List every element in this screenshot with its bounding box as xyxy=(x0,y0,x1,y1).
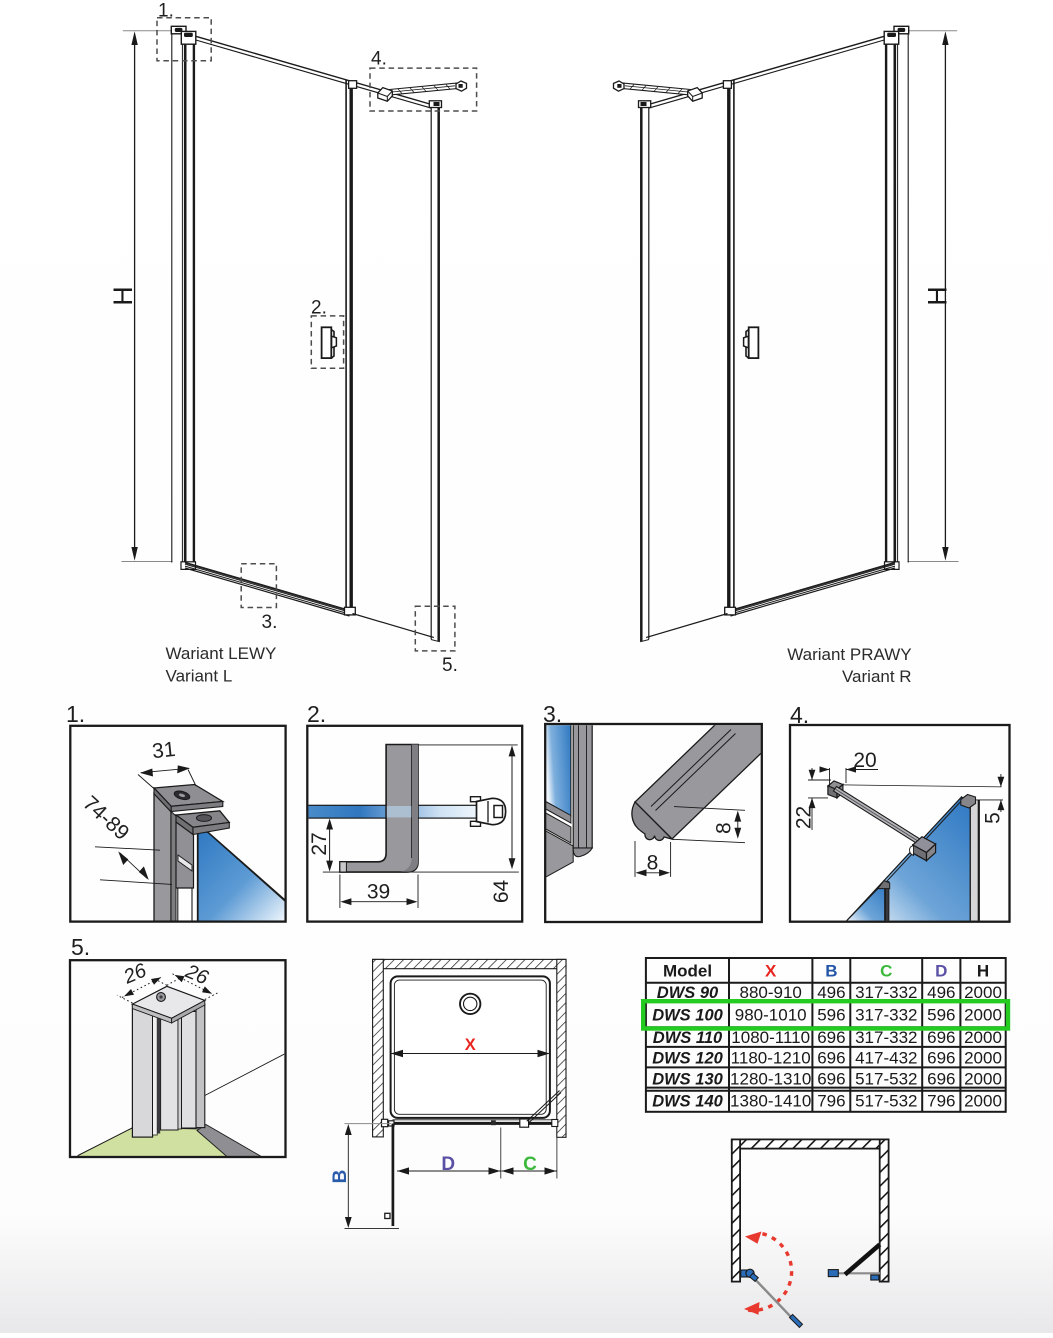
svg-text:X: X xyxy=(765,962,777,981)
svg-text:DWS 100: DWS 100 xyxy=(652,1007,723,1025)
svg-text:1280-1310: 1280-1310 xyxy=(730,1070,811,1089)
svg-text:C: C xyxy=(880,962,892,981)
svg-text:696: 696 xyxy=(927,1070,955,1089)
svg-text:D: D xyxy=(441,1154,455,1175)
svg-text:1.: 1. xyxy=(158,1,174,22)
svg-text:Variant R: Variant R xyxy=(842,667,912,686)
svg-text:696: 696 xyxy=(927,1028,955,1047)
svg-text:DWS 110: DWS 110 xyxy=(653,1029,723,1047)
svg-text:596: 596 xyxy=(817,1006,845,1025)
svg-text:696: 696 xyxy=(817,1049,845,1068)
svg-text:596: 596 xyxy=(927,1006,955,1025)
svg-text:27: 27 xyxy=(308,832,331,855)
svg-text:DWS 130: DWS 130 xyxy=(652,1071,723,1089)
svg-text:980-1010: 980-1010 xyxy=(735,1006,807,1025)
svg-text:H: H xyxy=(923,286,953,306)
svg-text:317-332: 317-332 xyxy=(855,1028,917,1047)
svg-text:5: 5 xyxy=(982,812,1005,824)
svg-text:2000: 2000 xyxy=(964,1070,1002,1089)
svg-text:2000: 2000 xyxy=(964,1049,1002,1068)
svg-text:517-532: 517-532 xyxy=(855,1092,917,1111)
svg-text:796: 796 xyxy=(927,1092,955,1111)
svg-text:317-332: 317-332 xyxy=(855,1006,917,1025)
svg-text:64: 64 xyxy=(490,880,513,904)
svg-text:1380-1410: 1380-1410 xyxy=(730,1092,811,1111)
svg-text:Model: Model xyxy=(663,962,712,981)
svg-text:3.: 3. xyxy=(262,612,278,633)
svg-text:B: B xyxy=(825,962,837,981)
svg-text:Wariant PRAWY: Wariant PRAWY xyxy=(787,645,911,664)
svg-text:796: 796 xyxy=(817,1092,845,1111)
svg-text:X: X xyxy=(465,1036,476,1054)
svg-text:2000: 2000 xyxy=(964,1028,1002,1047)
svg-text:2000: 2000 xyxy=(964,1006,1002,1025)
svg-text:DWS 140: DWS 140 xyxy=(652,1093,723,1111)
svg-text:22: 22 xyxy=(793,806,816,829)
svg-text:20: 20 xyxy=(853,749,876,772)
svg-text:2.: 2. xyxy=(311,298,327,319)
svg-text:1080-1110: 1080-1110 xyxy=(731,1028,810,1047)
svg-text:31: 31 xyxy=(151,738,177,763)
svg-text:Variant L: Variant L xyxy=(166,667,233,686)
svg-text:D: D xyxy=(935,962,947,981)
svg-text:8: 8 xyxy=(647,852,659,875)
svg-text:8: 8 xyxy=(713,822,736,834)
svg-text:5.: 5. xyxy=(71,934,90,960)
svg-text:5.: 5. xyxy=(442,655,458,676)
svg-text:417-432: 417-432 xyxy=(855,1049,917,1068)
svg-text:1.: 1. xyxy=(66,701,85,727)
svg-text:39: 39 xyxy=(367,881,390,904)
svg-text:4.: 4. xyxy=(371,49,387,70)
svg-text:517-532: 517-532 xyxy=(855,1070,917,1089)
svg-text:DWS 120: DWS 120 xyxy=(652,1050,723,1068)
svg-text:B: B xyxy=(330,1170,351,1184)
svg-text:H: H xyxy=(977,962,989,981)
svg-text:H: H xyxy=(108,286,138,306)
svg-text:696: 696 xyxy=(817,1028,845,1047)
svg-text:1180-1210: 1180-1210 xyxy=(731,1049,811,1068)
svg-text:696: 696 xyxy=(927,1049,955,1068)
svg-text:2.: 2. xyxy=(307,701,326,727)
svg-text:696: 696 xyxy=(817,1070,845,1089)
svg-text:C: C xyxy=(523,1154,537,1175)
svg-text:2000: 2000 xyxy=(964,1092,1002,1111)
svg-text:Wariant LEWY: Wariant LEWY xyxy=(166,644,277,663)
